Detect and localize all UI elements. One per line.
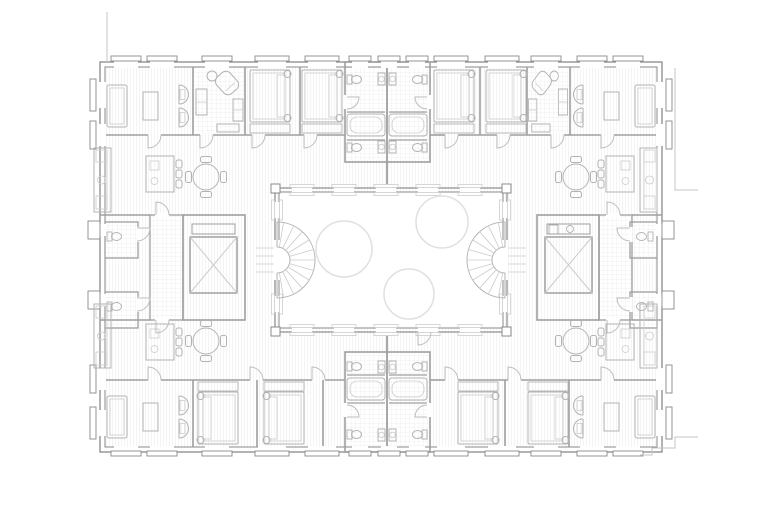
courtyard-tick — [290, 333, 314, 336]
window-gap — [656, 124, 663, 146]
window-gap — [114, 61, 138, 68]
courtyard-trees — [316, 196, 468, 319]
courtyard-tick — [290, 193, 314, 196]
window-sill — [666, 121, 672, 149]
door-gap — [629, 297, 633, 312]
window-sill — [613, 56, 643, 61]
window-sill — [90, 79, 96, 111]
window-bay — [88, 221, 100, 239]
window-sill — [202, 451, 232, 456]
courtyard-pier — [502, 327, 511, 336]
door-gap — [606, 213, 620, 218]
window-gap — [656, 368, 663, 390]
door-gap — [137, 297, 141, 312]
window-sill — [147, 451, 177, 456]
tile-dressing-right — [528, 67, 569, 133]
courtyard-tick — [508, 200, 511, 220]
courtyard-tick — [332, 193, 356, 196]
window-sill — [90, 365, 96, 393]
window-gap — [352, 61, 368, 68]
window-bay — [662, 221, 674, 239]
courtyard-tick — [458, 333, 482, 336]
tile-vestibule-right — [600, 216, 631, 319]
floor-plan-page — [0, 0, 780, 520]
courtyard-pier — [271, 184, 280, 193]
window-sill — [349, 451, 371, 456]
window-sill — [666, 365, 672, 393]
window-sill — [666, 407, 672, 439]
window-gap — [656, 410, 663, 436]
courtyard-tick — [332, 185, 356, 188]
window-sill — [378, 451, 400, 456]
window-gap — [99, 368, 106, 390]
window-gap — [580, 61, 604, 68]
window-gap — [534, 61, 558, 68]
window-sill — [90, 121, 96, 149]
window-sill — [434, 56, 468, 61]
courtyard-tick — [280, 200, 283, 220]
door-gap — [343, 95, 348, 109]
courtyard-tick — [416, 185, 440, 188]
door-gap — [155, 213, 169, 218]
floor-plan-drawing — [0, 0, 780, 520]
window-gap — [409, 61, 425, 68]
spiral-stair — [467, 222, 505, 298]
window-sill — [305, 56, 339, 61]
window-sill — [613, 451, 643, 456]
door-gap — [137, 227, 141, 242]
spiral-stair — [277, 222, 315, 298]
courtyard-tick — [332, 325, 356, 328]
courtyard-tick — [374, 193, 398, 196]
window-sill — [255, 56, 289, 61]
window-gap — [99, 82, 106, 108]
courtyard-tick — [416, 325, 440, 328]
window-sill — [485, 451, 519, 456]
window-sill — [349, 56, 371, 61]
courtyard-tick — [374, 333, 398, 336]
courtyard-tick — [280, 294, 283, 314]
window-gap — [437, 61, 465, 68]
courtyard-tick — [416, 193, 440, 196]
courtyard-tree — [316, 221, 372, 277]
window-sill — [90, 407, 96, 439]
courtyard-pier — [502, 184, 511, 193]
window-bay — [662, 291, 674, 309]
window-sill — [305, 451, 339, 456]
tile-dressing-left — [194, 67, 244, 133]
window-gap — [99, 410, 106, 436]
window-gap — [308, 61, 336, 68]
door-gap — [629, 227, 633, 242]
window-sill — [406, 56, 428, 61]
window-gap — [258, 61, 286, 68]
courtyard-tree — [384, 269, 434, 319]
floor-finishes — [105, 67, 657, 447]
door-gap — [155, 318, 169, 323]
window-sill — [666, 79, 672, 111]
window-sill — [577, 451, 607, 456]
window-gap — [150, 61, 174, 68]
window-gap — [99, 124, 106, 146]
courtyard-tick — [272, 294, 275, 314]
courtyard-tick — [374, 325, 398, 328]
spiral-stairs — [256, 222, 526, 298]
window-gap — [656, 82, 663, 108]
window-sill — [202, 56, 232, 61]
courtyard-tick — [374, 185, 398, 188]
window-gap — [381, 61, 397, 68]
window-gap — [205, 61, 229, 68]
courtyard-tick — [332, 333, 356, 336]
courtyard-tick — [458, 325, 482, 328]
courtyard-tick — [290, 325, 314, 328]
window-sill — [111, 56, 141, 61]
window-sill — [434, 451, 468, 456]
window-gap — [616, 61, 640, 68]
door-gap — [427, 403, 432, 417]
door-gap — [606, 318, 620, 323]
courtyard-tick — [500, 200, 503, 220]
window-sill — [485, 56, 519, 61]
window-sill — [111, 451, 141, 456]
window-sill — [531, 56, 561, 61]
door-gap — [343, 403, 348, 417]
courtyard-tree — [416, 196, 468, 248]
courtyard-tick — [272, 200, 275, 220]
courtyard-tick — [290, 185, 314, 188]
door-gap — [427, 95, 432, 109]
courtyard-tick — [508, 294, 511, 314]
site-line — [675, 68, 698, 190]
courtyard-tick — [458, 185, 482, 188]
courtyard-tick — [500, 294, 503, 314]
courtyard-tick — [416, 333, 440, 336]
window-sill — [531, 451, 561, 456]
window-sill — [255, 451, 289, 456]
window-sill — [378, 56, 400, 61]
courtyard-tick — [458, 193, 482, 196]
window-gap — [488, 61, 516, 68]
window-sill — [577, 56, 607, 61]
tile-wc — [106, 223, 137, 257]
window-sill — [406, 451, 428, 456]
courtyard-pier — [271, 327, 280, 336]
tile-vestibule-left — [151, 216, 182, 319]
window-sill — [147, 56, 177, 61]
